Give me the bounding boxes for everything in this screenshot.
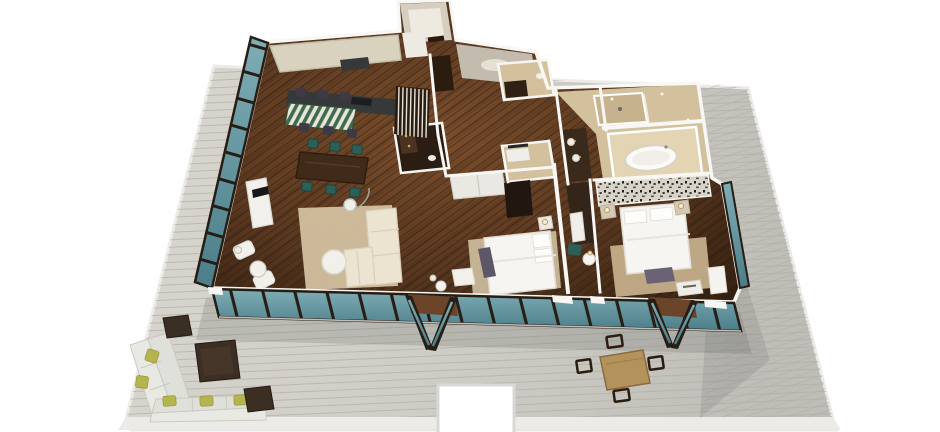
drawer-unit <box>452 268 475 286</box>
floor-lamp <box>235 247 242 254</box>
shower-drain <box>618 107 622 111</box>
luggage-bench <box>676 280 703 296</box>
pillow <box>650 207 673 221</box>
tall-cabinet <box>402 31 428 58</box>
foot-bench <box>644 267 675 284</box>
table-lamp <box>588 251 592 255</box>
closet-door-dark <box>504 180 533 218</box>
ensuite-bathroom <box>502 141 555 182</box>
floor-lamp <box>430 275 436 281</box>
downlight <box>611 98 614 101</box>
floorplan-svg: 3D isometric floor plan render of a thre… <box>0 0 940 432</box>
floorplan-render: 3D isometric floor plan render of a thre… <box>0 0 940 432</box>
bookshelf <box>570 212 585 242</box>
deck-stair-notch <box>438 385 514 432</box>
slatted-screen <box>394 86 430 138</box>
patio-table <box>600 350 650 390</box>
table-lamp <box>679 204 684 209</box>
suite-unit <box>195 0 749 351</box>
round-table <box>436 281 446 291</box>
pillow <box>624 210 647 224</box>
master-bathroom <box>556 84 710 187</box>
coffee-table <box>322 250 346 274</box>
dining-table <box>296 152 368 184</box>
downlight <box>661 93 664 96</box>
accent-chair <box>567 243 581 256</box>
wall-niche-box <box>708 266 727 294</box>
pillow <box>532 233 551 248</box>
tub-faucet <box>664 145 667 148</box>
table-lamp <box>543 220 548 225</box>
side-table <box>250 261 266 277</box>
table-lamp <box>605 208 610 213</box>
